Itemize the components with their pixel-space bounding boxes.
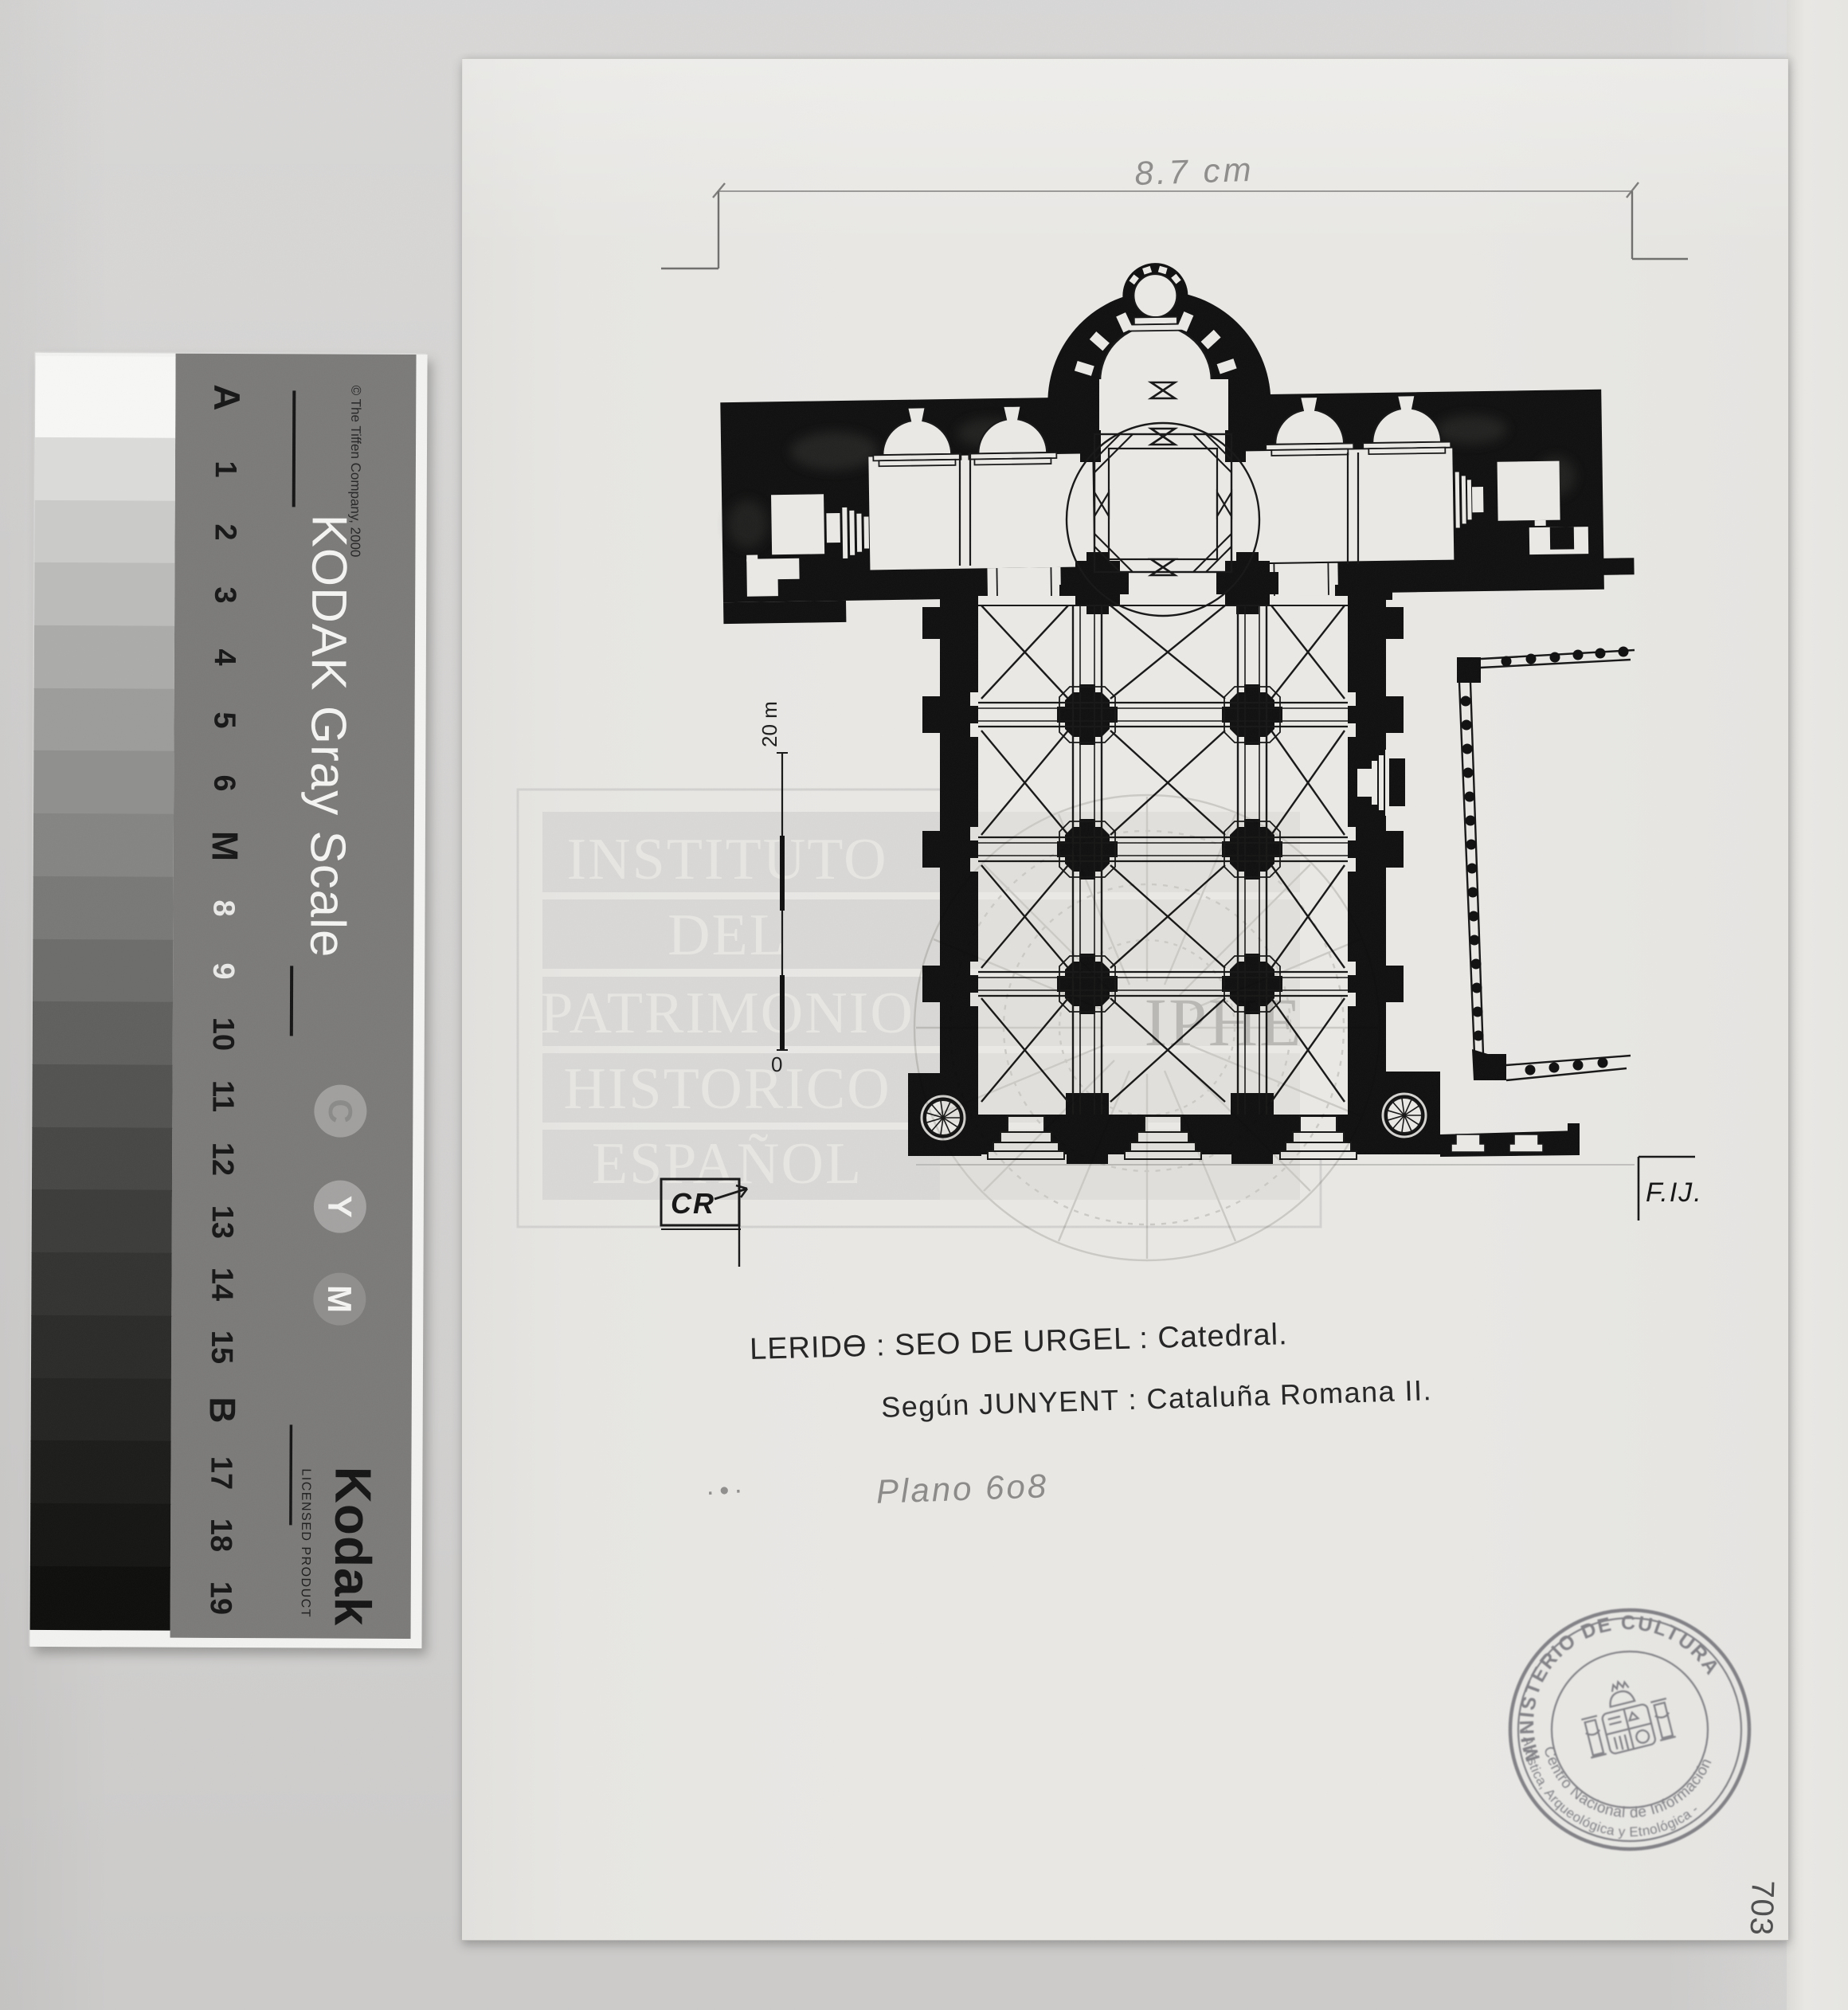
svg-text:18: 18 [204, 1518, 237, 1552]
svg-text:19: 19 [204, 1581, 237, 1615]
svg-text:10: 10 [206, 1017, 240, 1051]
svg-text:8.7 cm: 8.7 cm [1134, 151, 1255, 192]
svg-text:5: 5 [207, 711, 241, 728]
svg-text:A: A [206, 384, 248, 410]
svg-text:15: 15 [205, 1330, 238, 1364]
svg-text:KODAK Gray Scale: KODAK Gray Scale [300, 514, 356, 958]
svg-text:11: 11 [206, 1080, 239, 1112]
svg-text:© The Tiffen Company, 2000: © The Tiffen Company, 2000 [347, 386, 363, 558]
svg-text:Kodak: Kodak [324, 1467, 382, 1627]
svg-text:LICENSED PRODUCT: LICENSED PRODUCT [299, 1468, 313, 1618]
svg-text:9: 9 [206, 962, 240, 979]
svg-text:Y: Y [321, 1196, 358, 1218]
svg-text:13: 13 [206, 1205, 239, 1239]
svg-text:4: 4 [208, 648, 241, 665]
svg-text:- Artística, Arqueológica y Et: - Artística, Arqueológica y Etnológica - [1520, 1729, 1701, 1840]
svg-text:2: 2 [208, 523, 241, 540]
svg-text:14: 14 [205, 1268, 238, 1301]
svg-text:IPHE: IPHE [1144, 984, 1302, 1060]
svg-text:3: 3 [208, 586, 241, 603]
svg-text:C: C [322, 1099, 359, 1123]
svg-text:12: 12 [206, 1142, 239, 1176]
svg-text:M: M [205, 831, 246, 862]
svg-text:20 m: 20 m [758, 701, 781, 747]
svg-text:F.IJ.: F.IJ. [1646, 1177, 1703, 1208]
svg-text:8: 8 [206, 899, 240, 916]
svg-text:CR: CR [671, 1187, 715, 1220]
svg-text:B: B [202, 1397, 244, 1423]
svg-text:0: 0 [771, 1052, 782, 1076]
svg-text:1: 1 [209, 460, 242, 477]
svg-text:M: M [321, 1285, 358, 1313]
svg-text:17: 17 [204, 1456, 237, 1490]
svg-text:6: 6 [207, 774, 241, 791]
